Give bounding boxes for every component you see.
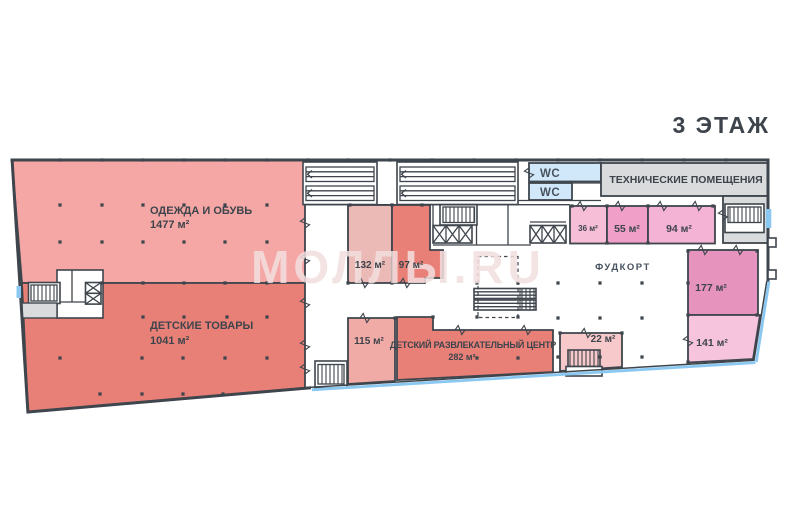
room-115[interactable] [348,318,395,384]
bottom-staircase [315,361,347,388]
label-22: 22 м² [591,334,616,345]
right-staircase [725,204,764,233]
label-technical: ТЕХНИЧЕСКИЕ ПОМЕЩЕНИЯ [609,174,762,186]
label-177: 177 м² [695,282,727,294]
label-clothes-area: 1477 м² [150,219,190,231]
label-wc-2: WC [540,187,560,199]
label-kids-goods-name: ДЕТСКИЕ ТОВАРЫ [150,320,254,332]
floor-plan-svg: МОЛЛЫ.RU 3 ЭТАЖ ОДЕЖДА И ОБУВЬ 1477 м² Д… [0,0,800,527]
central-staircase [440,205,477,225]
floor-plan-page: МОЛЛЫ.RU 3 ЭТАЖ ОДЕЖДА И ОБУВЬ 1477 м² Д… [0,0,800,527]
label-36: 36 м² [578,224,598,233]
label-kids-goods-area: 1041 м² [150,335,190,347]
right-service-door [766,209,772,228]
label-55: 55 м² [614,223,640,235]
travelator-block-right [397,162,518,205]
travelator-block-left [303,162,377,205]
label-97: 97 м² [399,260,424,271]
floor-title: 3 ЭТАЖ [672,112,770,138]
label-kids-center-area: 282 м² [448,352,475,362]
label-115: 115 м² [354,336,384,347]
label-94: 94 м² [666,223,692,235]
label-kids-center-name: ДЕТСКИЙ РАЗВЛЕКАТЕЛЬНЫЙ ЦЕНТР [390,339,556,350]
left-entrance-door [17,286,22,298]
label-foodcourt: ФУДКОРТ [595,262,651,273]
label-clothes-name: ОДЕЖДА И ОБУВЬ [150,205,252,217]
elevator-bank-2 [530,222,566,243]
label-141: 141 м² [696,337,728,349]
label-132: 132 м² [355,260,386,271]
label-wc-1: WC [540,168,560,180]
